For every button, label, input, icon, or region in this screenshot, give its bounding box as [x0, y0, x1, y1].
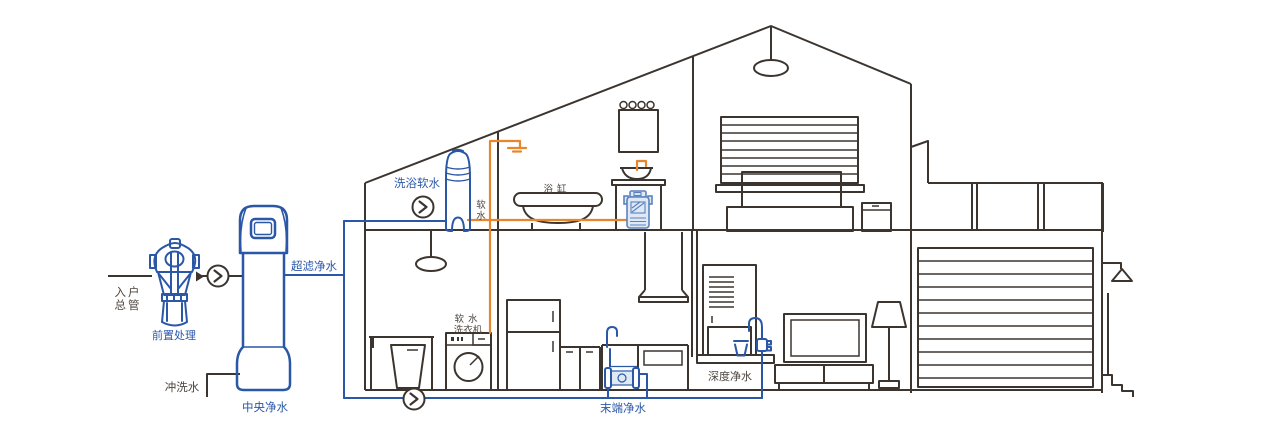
terrace-and-garage — [911, 141, 1133, 397]
kitchen — [507, 232, 688, 390]
wall-lamp-bracket — [1102, 263, 1121, 269]
valve-softener — [413, 197, 434, 218]
kitchen-cabinets — [560, 347, 600, 390]
floor-lamp-shade — [872, 302, 906, 327]
nightstand-drawer — [862, 206, 891, 210]
mirror — [619, 110, 658, 152]
wall-lamp-icon — [1112, 269, 1132, 281]
soft-washer-label-line2: 洗衣机 — [454, 324, 483, 336]
bathtub-label: 浴缸 — [543, 183, 570, 195]
inlet-label-line2: 总管 — [115, 298, 142, 312]
shower-pipe — [490, 141, 520, 333]
pipe-connector — [196, 272, 204, 282]
soft-water-label-char2: 水 — [476, 210, 486, 222]
valve-ground-pipe — [404, 389, 425, 410]
mirror-light-icon — [629, 102, 636, 109]
railing-posts — [972, 183, 1103, 232]
soft-washer-label-line1: 软水 — [454, 313, 481, 325]
range-hood-base — [639, 297, 688, 302]
water-cup-icon — [734, 341, 748, 356]
pendant-lamp-icon — [754, 60, 788, 76]
washer-knob — [451, 337, 454, 341]
washer-knob — [461, 337, 463, 341]
laundry-room — [369, 230, 491, 390]
valve-main-inlet — [208, 266, 229, 287]
interior-wall-lower — [692, 230, 697, 357]
washer-door-handle — [470, 356, 479, 365]
tv-screen — [791, 320, 859, 356]
bath-softener-device — [446, 150, 470, 231]
laundry-tap — [373, 337, 385, 348]
deep-purifier-dispenser — [734, 339, 771, 356]
nightstand — [862, 203, 891, 231]
central-purifier-device — [237, 206, 290, 390]
soft-water-label-char1: 软 — [476, 199, 486, 211]
bath-softener-label: 洗浴软水 — [394, 176, 440, 190]
bed-base — [727, 207, 853, 231]
deep-purifier-label: 深度净水 — [708, 369, 752, 383]
dispenser-vents — [709, 277, 734, 307]
eave-edge — [911, 141, 928, 183]
garage-door — [918, 248, 1093, 387]
garage-door-slats — [918, 261, 1093, 378]
oven-drawer — [644, 351, 682, 365]
terminal-purifier-label: 末端净水 — [600, 401, 646, 415]
flush-water-label: 冲洗水 — [165, 380, 200, 394]
mirror-light-icon — [647, 102, 654, 109]
bedroom — [716, 26, 891, 231]
prefilter-device — [150, 239, 204, 326]
ultrafiltration-label: 超滤净水 — [291, 259, 337, 273]
laundry-pendant-lamp-icon — [416, 257, 446, 271]
vanity-heater-device — [624, 191, 652, 228]
blind-slats — [721, 125, 858, 174]
tv-stand-legs — [779, 365, 869, 391]
central-purifier-label: 中央净水 — [242, 400, 288, 414]
bed-headboard — [742, 172, 841, 207]
washer-knob — [457, 337, 459, 341]
mirror-light-icon — [620, 102, 627, 109]
tv — [784, 314, 866, 362]
laundry-basin — [391, 345, 425, 388]
shower-head-icon — [508, 148, 526, 152]
vanity-counter — [612, 180, 665, 185]
range-hood — [639, 232, 688, 297]
fridge — [507, 300, 560, 390]
mirror-light-icon — [638, 102, 645, 109]
inlet-label-line1: 入户 — [115, 285, 142, 299]
floor-lamp-base — [879, 381, 899, 388]
entry-steps — [1102, 375, 1133, 397]
prefilter-label: 前置处理 — [152, 328, 196, 342]
whole-house-water-system-diagram: 入户 总管 前置处理 冲洗水 中央净水 超滤净水 洗浴软水 软 水 浴缸 软水 … — [0, 0, 1280, 434]
flush-drain-pipe — [207, 374, 240, 397]
terminal-purifier-device — [605, 367, 639, 389]
